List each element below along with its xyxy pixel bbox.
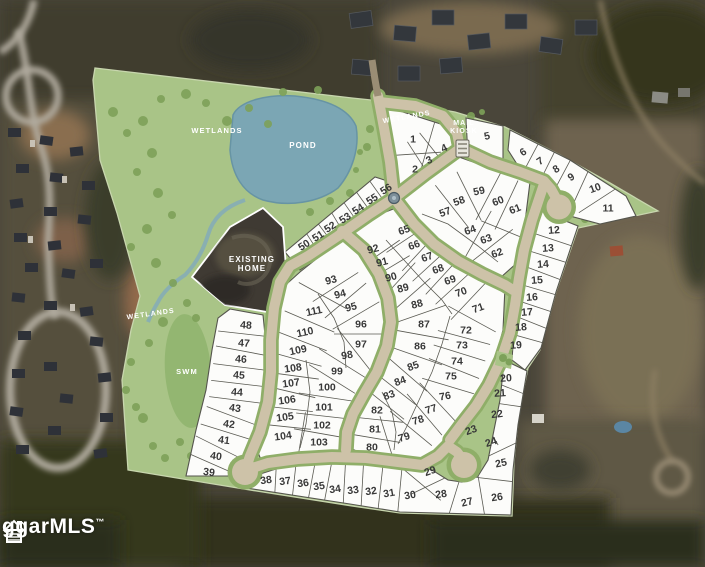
lot-label-106: 106 [278,393,297,407]
lot-label-86: 86 [414,341,426,353]
lot-label-14: 14 [537,258,550,271]
lot-label-21: 21 [494,387,507,400]
lot-label-32: 32 [364,485,377,499]
lot-label-37: 37 [278,475,291,489]
lot-label-1: 1 [410,134,416,146]
lot-label-34: 34 [328,483,341,497]
lot-label-41: 41 [217,434,230,447]
lot-label-48: 48 [240,319,253,332]
watermark-house-icon [2,516,26,546]
lot-label-98: 98 [340,349,354,363]
cul-de-sac [547,195,572,220]
lot-label-102: 102 [313,420,331,432]
lot-label-108: 108 [284,361,303,375]
lot-label-72: 72 [460,325,472,337]
lot-label-12: 12 [548,224,561,237]
area-label-mail-kiosk: MAILKIOSK [450,120,478,135]
lot-label-73: 73 [456,340,468,352]
lot-label-46: 46 [235,353,248,366]
lot-label-81: 81 [369,424,381,436]
lot-label-43: 43 [228,402,241,415]
subdivision-plat-map: WETLANDSWETLANDSWETLANDSPONDSWMEXISTINGH… [0,0,705,567]
lot-label-97: 97 [355,339,367,351]
lot-label-2: 2 [412,164,418,176]
lot-label-107: 107 [282,376,301,390]
lot-label-22: 22 [491,408,504,421]
lot-label-103: 103 [310,437,328,449]
lot-label-75: 75 [445,371,457,383]
lot-label-13: 13 [542,242,555,255]
lot-label-31: 31 [382,487,396,501]
lot-label-74: 74 [451,356,463,368]
lot-label-80: 80 [366,442,378,454]
lot-label-30: 30 [403,489,417,503]
lot-label-35: 35 [312,480,325,494]
listing-watermark: ggarMLS™ [2,516,105,537]
cul-de-sac [451,452,477,478]
lot-label-33: 33 [346,484,359,498]
lot-label-15: 15 [531,274,544,287]
lot-label-28: 28 [434,488,447,502]
lot-label-82: 82 [371,405,383,417]
trademark-symbol: ™ [95,517,105,527]
lot-label-16: 16 [526,291,539,304]
lot-label-11: 11 [602,203,613,215]
lot-label-99: 99 [331,366,343,378]
mail-kiosk-icon [456,140,469,157]
lot-label-39: 39 [202,466,215,479]
area-label-pond: POND [289,141,317,150]
lot-label-76: 76 [438,390,452,404]
lot-label-20: 20 [500,372,513,385]
plat-map-screenshot: WETLANDSWETLANDSWETLANDSPONDSWMEXISTINGH… [0,0,705,567]
lot-label-38: 38 [259,474,272,488]
lot-label-42: 42 [222,418,235,431]
lot-label-104: 104 [274,429,293,443]
cul-de-sac [232,459,258,485]
lot-label-96: 96 [355,319,367,331]
lot-label-87: 87 [418,319,430,331]
lot-label-40: 40 [209,450,222,463]
lot-label-19: 19 [510,339,523,352]
lot-label-18: 18 [515,321,528,334]
lot-label-44: 44 [231,386,244,399]
lot-label-17: 17 [521,306,534,319]
area-label-wetlands-1: WETLANDS [191,126,242,135]
lot-label-45: 45 [233,369,246,382]
lot-label-101: 101 [315,402,333,414]
lot-label-26: 26 [490,491,503,505]
lot-label-105: 105 [276,410,295,424]
lot-label-47: 47 [238,337,251,350]
lot-label-36: 36 [296,477,309,491]
traffic-island-icon [389,193,400,204]
area-label-swm: SWM [176,367,198,376]
lot-label-100: 100 [318,382,336,394]
